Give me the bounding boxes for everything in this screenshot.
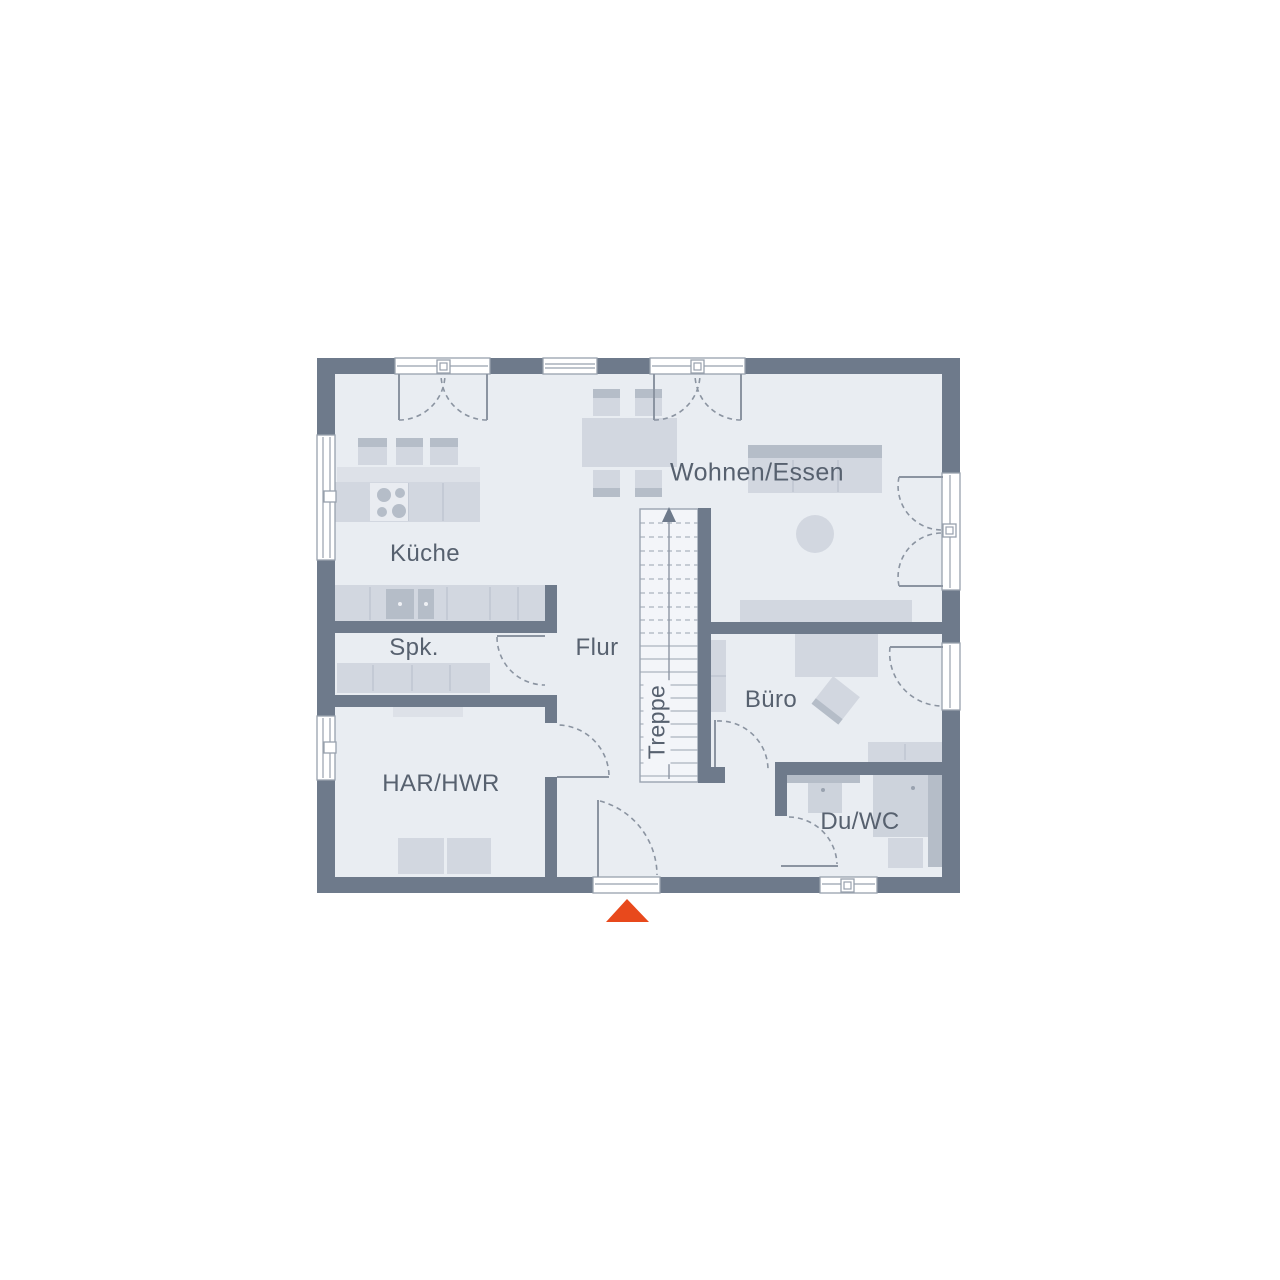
room-label-har-hwr: HAR/HWR — [382, 770, 499, 798]
wall-living-office — [711, 622, 942, 634]
desk — [795, 633, 878, 677]
wall-kitchen-pantry — [335, 621, 557, 633]
room-label-buero: Büro — [745, 686, 797, 714]
window-top — [543, 358, 597, 374]
room-label-flur: Flur — [576, 634, 619, 662]
room-label-du-wc: Du/WC — [820, 808, 899, 836]
room-label-treppe: Treppe — [644, 680, 671, 764]
floor-plan-page: Küche Spk. Flur Treppe HAR/HWR Wohnen/Es… — [0, 0, 1280, 1280]
wall-stairs — [698, 508, 711, 767]
entrance-arrow-icon — [606, 899, 649, 922]
floor-plan-drawing — [0, 0, 1280, 1280]
toilet — [888, 838, 923, 868]
round-rug — [796, 515, 834, 553]
washer — [398, 838, 444, 874]
door-frame-office — [942, 643, 960, 710]
pantry-shelf — [337, 663, 490, 693]
dryer — [447, 838, 491, 874]
room-label-spk: Spk. — [389, 634, 439, 662]
entrance-threshold — [593, 877, 660, 893]
room-label-kueche: Küche — [390, 540, 460, 568]
wall-pantry-utility — [335, 695, 557, 707]
sideboard — [740, 600, 912, 622]
room-label-wohnen-essen: Wohnen/Essen — [670, 459, 844, 488]
wall-office-bath — [775, 762, 942, 775]
dining-table — [582, 418, 677, 467]
